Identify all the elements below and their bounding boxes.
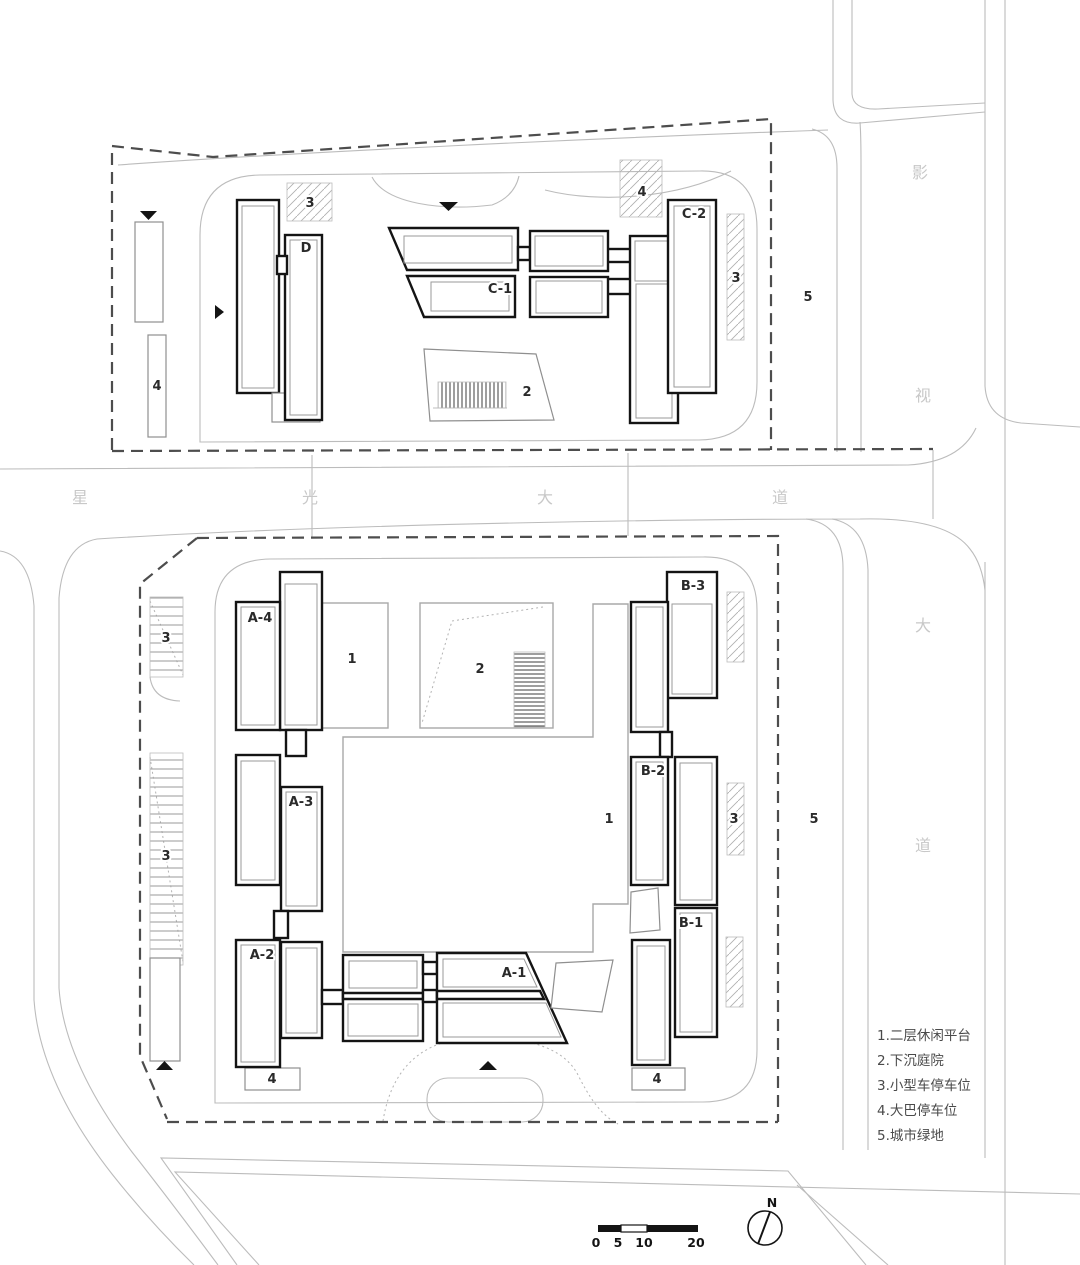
- label-green-1: 5: [803, 290, 812, 305]
- scale-bar-segment-1: [598, 1225, 621, 1232]
- north-arrow: N: [748, 1195, 782, 1245]
- building-c2-bar: [668, 200, 716, 393]
- label-parking-bus-4: 4: [652, 1072, 661, 1087]
- street-yingshi-char-3: 大: [915, 616, 931, 635]
- scale-tick-5: 5: [614, 1235, 623, 1250]
- label-parking-small-5: 3: [729, 812, 738, 827]
- building-a1-bridge-1: [423, 962, 437, 974]
- ramp-upper-left: [135, 222, 163, 322]
- label-building-b1: B-1: [679, 916, 703, 931]
- label-parking-small-2: 3: [731, 271, 740, 286]
- legend-item-platform: 1.二层休闲平台: [877, 1028, 971, 1044]
- north-arrow-needle: [758, 1212, 770, 1244]
- label-building-c2: C-2: [682, 207, 706, 222]
- scale-tick-20: 20: [687, 1235, 705, 1250]
- label-building-b2: B-2: [641, 764, 665, 779]
- building-c1-bridge-east-2: [606, 279, 632, 294]
- entrance-arrow-right-upper: [215, 305, 224, 319]
- label-building-d: D: [301, 241, 312, 256]
- building-c1-east-south-bar: [530, 277, 608, 317]
- building-c1-east-north-bar: [530, 231, 608, 271]
- label-parking-small-3: 3: [161, 631, 170, 646]
- street-xingguang-char-2: 光: [302, 488, 318, 507]
- parking-small-lower-east-3: [726, 937, 743, 1007]
- scale-tick-0: 0: [592, 1235, 601, 1250]
- label-building-a4: A-4: [248, 611, 273, 626]
- canopy-quad-south: [551, 960, 613, 1012]
- plaza-outlines: [315, 349, 628, 952]
- building-a4-a3-connector: [286, 730, 306, 756]
- buildings-lower-block: [236, 572, 717, 1067]
- building-d-ladder-bar: [237, 200, 279, 393]
- scale-tick-10: 10: [635, 1235, 653, 1250]
- label-green-2: 5: [809, 812, 818, 827]
- label-building-a2: A-2: [250, 948, 275, 963]
- legend-item-parking-bus: 4.大巴停车位: [877, 1102, 957, 1119]
- label-parking-small-1: 3: [305, 196, 314, 211]
- building-b3-b2-connector: [660, 732, 672, 757]
- label-building-a3: A-3: [289, 795, 314, 810]
- building-d-bridge: [277, 256, 287, 274]
- parking-small-lower-east-1: [727, 592, 744, 662]
- legend-item-green: 5.城市绿地: [877, 1127, 944, 1144]
- street-yingshi-char-1: 影: [912, 163, 928, 182]
- scale-bar-segment-2: [621, 1225, 647, 1232]
- street-xingguang-char-3: 大: [537, 488, 553, 507]
- courtyard-stairs-upper: [438, 382, 506, 408]
- label-area-courtyard-upper: 2: [522, 385, 531, 400]
- ramp-lower-left: [150, 958, 180, 1061]
- label-building-a1: A-1: [502, 966, 527, 981]
- building-a1-bridge-2: [423, 990, 437, 1002]
- label-area-courtyard-lower: 2: [475, 662, 484, 677]
- label-area-platform-1: 1: [347, 652, 356, 667]
- scale-bar: 0 5 10 20: [592, 1225, 705, 1250]
- courtyard-stairs-lower: [514, 652, 545, 727]
- legend: 1.二层休闲平台 2.下沉庭院 3.小型车停车位 4.大巴停车位 5.城市绿地: [877, 1028, 971, 1144]
- building-a3-ladder-bar: [236, 755, 280, 885]
- site-plan-canvas: D C-1 C-2 A-4 A-3 A-2 A-1 B-3 B-2 B-1 1 …: [0, 0, 1080, 1265]
- building-a2-ladder-bar: [281, 942, 322, 1038]
- legend-item-parking-small: 3.小型车停车位: [877, 1077, 971, 1094]
- label-parking-bus-2: 4: [637, 185, 646, 200]
- building-c1-north-bar: [389, 228, 518, 270]
- label-parking-bus-1: 4: [152, 379, 161, 394]
- building-b1-ladder-bar: [632, 940, 670, 1065]
- building-d-bar: [285, 235, 322, 420]
- entrance-arrow-down-upper-west: [140, 211, 157, 220]
- label-parking-bus-3: 4: [267, 1072, 276, 1087]
- platform-area-main: [343, 604, 628, 952]
- entrance-arrow-up-lower-west: [156, 1061, 173, 1070]
- north-arrow-label: N: [767, 1195, 777, 1210]
- label-building-c1: C-1: [488, 282, 512, 297]
- legend-item-courtyard: 2.下沉庭院: [877, 1052, 944, 1069]
- label-area-platform-2: 1: [604, 812, 613, 827]
- canopy-quad-east: [630, 888, 660, 933]
- building-south-bridge-west: [322, 990, 343, 1004]
- dropoff-loop: [427, 1078, 543, 1122]
- label-building-b3: B-3: [681, 579, 705, 594]
- street-yingshi-char-4: 道: [915, 836, 931, 855]
- building-b2-ladder-bar: [675, 757, 717, 905]
- street-xingguang-char-1: 星: [72, 488, 88, 507]
- street-yingshi-char-2: 视: [915, 386, 931, 405]
- street-xingguang-char-4: 道: [772, 488, 788, 507]
- building-a4-ladder-bar: [280, 572, 322, 730]
- label-parking-small-4: 3: [161, 849, 170, 864]
- site-plan-drawing: D C-1 C-2 A-4 A-3 A-2 A-1 B-3 B-2 B-1 1 …: [0, 0, 1080, 1265]
- scale-bar-segment-3: [647, 1225, 698, 1232]
- building-c1-bridge-west: [518, 247, 530, 260]
- building-b3-ladder-bar: [631, 602, 668, 732]
- building-a3-a2-connector: [274, 911, 288, 938]
- building-c1-bridge-east-1: [606, 249, 632, 262]
- entrance-arrow-up-lower-center: [479, 1061, 497, 1070]
